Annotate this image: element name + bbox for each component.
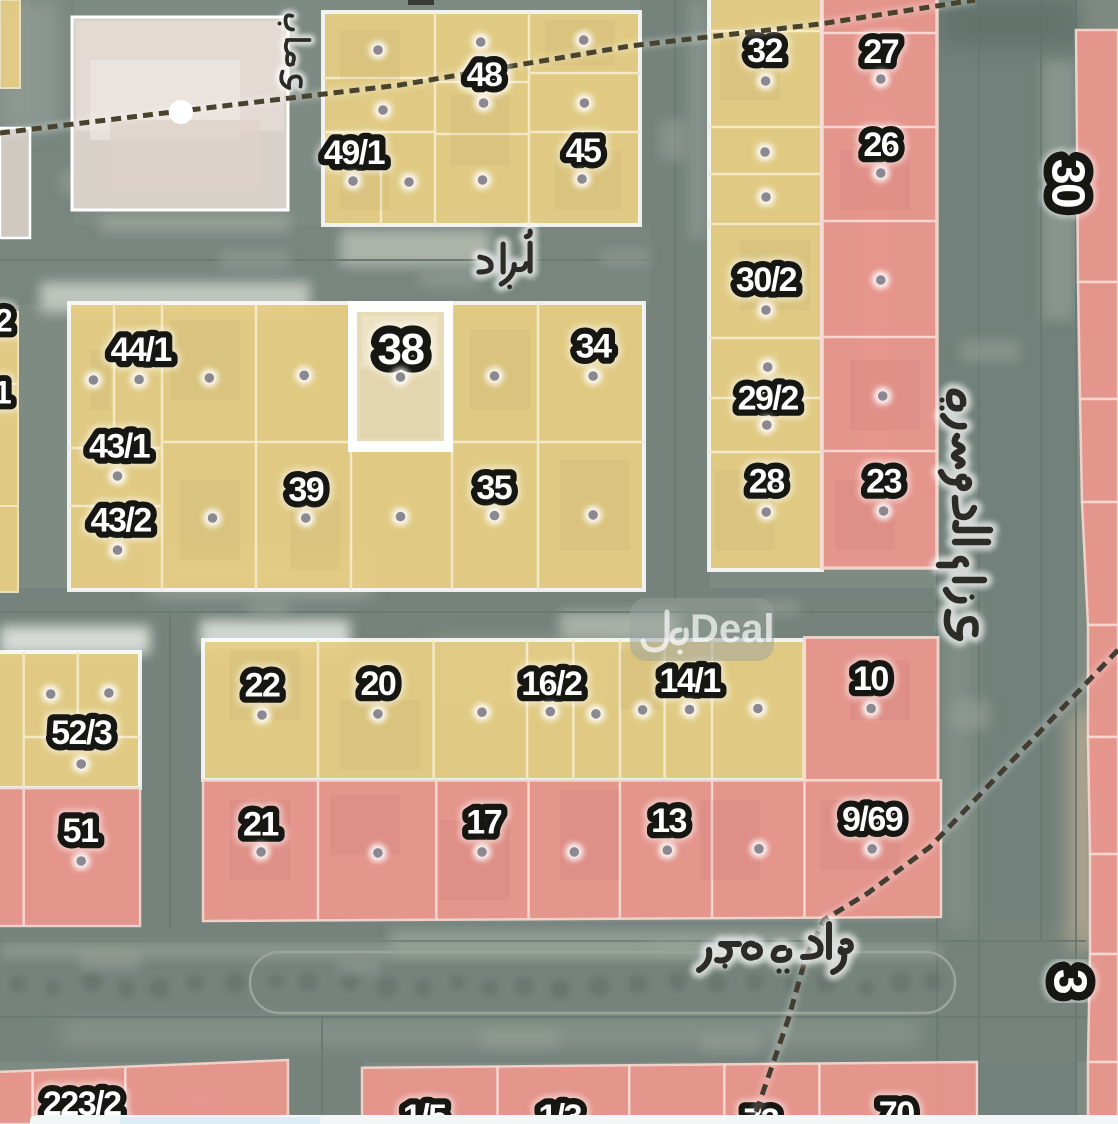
svg-text:44/1: 44/1 — [111, 331, 172, 369]
svg-text:13: 13 — [651, 802, 686, 840]
svg-text:2: 2 — [0, 303, 12, 339]
svg-text:21: 21 — [243, 805, 278, 843]
svg-text:28: 28 — [749, 463, 784, 501]
svg-text:22: 22 — [245, 667, 280, 705]
svg-text:Deal: Deal — [690, 607, 775, 651]
svg-text:48: 48 — [467, 56, 502, 94]
svg-text:16/2: 16/2 — [521, 665, 582, 703]
svg-text:23: 23 — [866, 463, 901, 501]
svg-text:51: 51 — [63, 812, 98, 850]
svg-text:26: 26 — [863, 126, 898, 164]
svg-text:52/3: 52/3 — [51, 714, 112, 752]
svg-text:9/69: 9/69 — [842, 801, 903, 839]
svg-text:43/2: 43/2 — [91, 502, 152, 540]
svg-text:35: 35 — [476, 469, 511, 507]
svg-text:30: 30 — [1042, 159, 1094, 207]
svg-text:29/2: 29/2 — [738, 380, 799, 418]
svg-text:45: 45 — [566, 132, 601, 170]
svg-text:39: 39 — [288, 471, 323, 509]
svg-text:14/1: 14/1 — [660, 662, 721, 700]
svg-text:10: 10 — [853, 660, 888, 698]
svg-text:32: 32 — [747, 32, 782, 70]
svg-text:3: 3 — [1044, 969, 1096, 993]
svg-text:30/2: 30/2 — [736, 261, 797, 299]
svg-text:49/1: 49/1 — [324, 134, 385, 172]
svg-text:27: 27 — [863, 33, 898, 71]
svg-text:17: 17 — [466, 804, 501, 842]
svg-text:38: 38 — [378, 325, 425, 374]
svg-text:43/1: 43/1 — [89, 428, 150, 466]
svg-text:20: 20 — [360, 665, 395, 703]
svg-text:34: 34 — [576, 327, 612, 365]
svg-text:1: 1 — [0, 375, 11, 411]
